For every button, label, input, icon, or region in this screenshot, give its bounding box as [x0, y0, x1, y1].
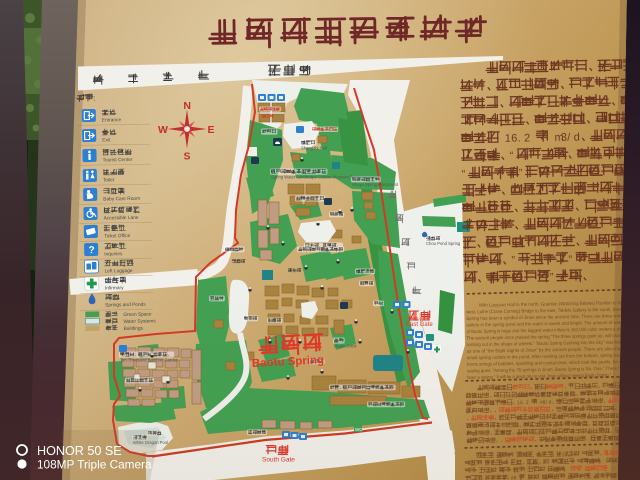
svg-text:108MP Triple Camera: 108MP Triple Camera: [37, 458, 152, 472]
svg-text:HONOR 50 SE: HONOR 50 SE: [37, 444, 122, 458]
